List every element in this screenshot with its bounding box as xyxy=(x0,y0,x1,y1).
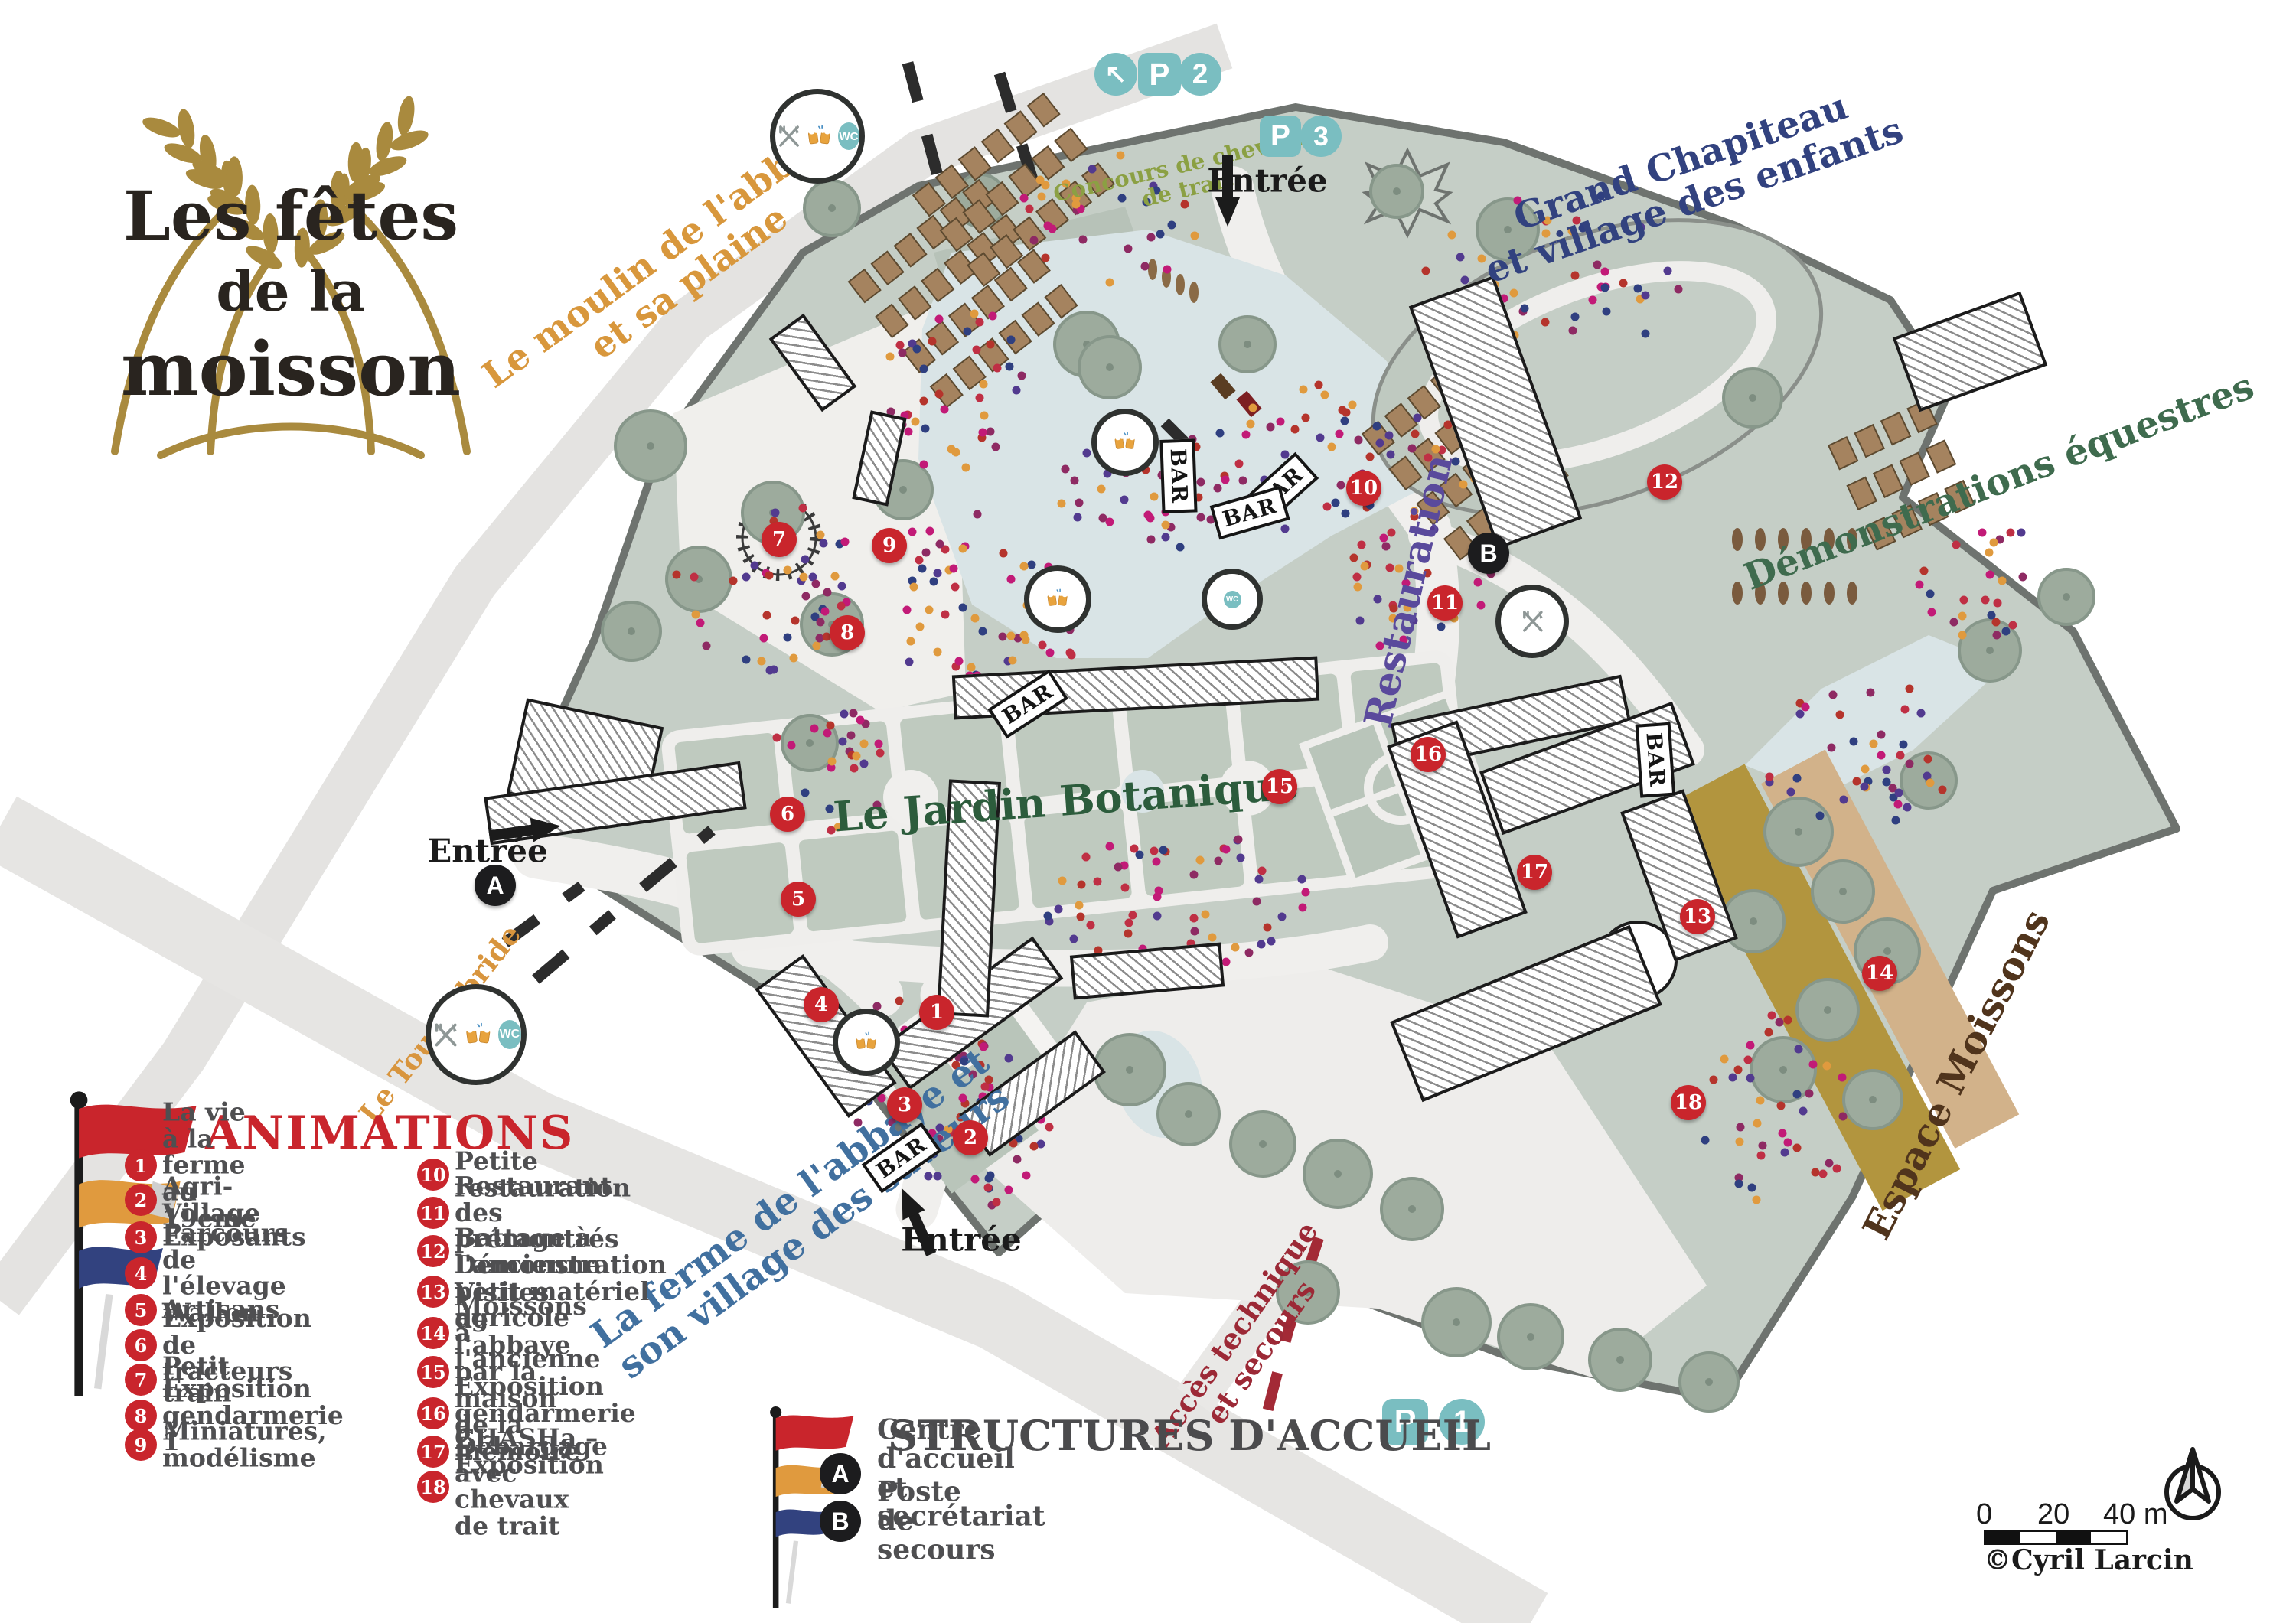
map-marker-16: 16 xyxy=(1411,737,1446,772)
map-marker-4: 4 xyxy=(804,987,839,1022)
legend-num-5: 5 xyxy=(125,1294,157,1326)
horse-figure xyxy=(1732,582,1743,605)
parking-p2-letter: P xyxy=(1138,53,1181,96)
legend-num-10: 10 xyxy=(417,1159,449,1191)
parking-arrow-icon: ↖ xyxy=(1094,53,1137,96)
fork-knife-icon xyxy=(775,119,801,153)
legend-num-11: 11 xyxy=(417,1197,449,1229)
legend-num-17: 17 xyxy=(417,1436,449,1468)
legend-num-15: 15 xyxy=(417,1356,449,1388)
legend-num-13: 13 xyxy=(417,1276,449,1308)
map-marker-5: 5 xyxy=(781,882,816,917)
map-marker-2: 2 xyxy=(953,1120,988,1155)
horse-figure xyxy=(1801,582,1812,605)
legend-num-16: 16 xyxy=(417,1397,449,1429)
legend-letter-A: A xyxy=(820,1453,861,1494)
beer-mugs-icon xyxy=(853,1031,879,1052)
bar-sign: BAR xyxy=(1636,722,1675,798)
compass-icon xyxy=(2151,1445,2235,1529)
legend-num-8: 8 xyxy=(125,1400,157,1432)
logo-line2: de la xyxy=(54,259,528,324)
legend-num-6: 6 xyxy=(125,1329,157,1361)
entrance-arrow-north xyxy=(1214,152,1241,228)
map-point-A: A xyxy=(475,865,516,906)
services-circle xyxy=(1091,409,1159,476)
parking-p2-number: 2 xyxy=(1179,53,1221,96)
fork-knife-icon xyxy=(1519,608,1545,634)
bar-sign: BAR xyxy=(1159,438,1197,513)
scale-20: 20 xyxy=(2037,1498,2069,1531)
map-marker-9: 9 xyxy=(872,528,907,563)
map-marker-14: 14 xyxy=(1862,956,1897,991)
beer-mugs-icon xyxy=(1045,588,1071,609)
legend-num-4: 4 xyxy=(125,1257,157,1289)
legend-num-1: 1 xyxy=(125,1149,157,1181)
map-marker-13: 13 xyxy=(1680,899,1715,934)
legend-structure-label-B: Poste de secours xyxy=(877,1478,996,1564)
legend-label-18: Débardage avec chevaux de trait xyxy=(455,1434,608,1540)
services-circle xyxy=(1495,585,1569,658)
festival-map: Le moulin de l'abbayeet sa plaineConcour… xyxy=(0,0,2296,1623)
map-marker-11: 11 xyxy=(1427,585,1463,621)
services-circle xyxy=(1024,565,1091,633)
services-circle xyxy=(833,1009,900,1076)
beer-mugs-icon xyxy=(463,1019,494,1051)
legend-num-14: 14 xyxy=(417,1317,449,1349)
wc-icon: WC xyxy=(1224,591,1241,608)
map-marker-10: 10 xyxy=(1346,471,1381,506)
horse-figure xyxy=(1824,582,1835,605)
beer-mugs-icon xyxy=(805,122,834,151)
logo-line1: Les fêtes xyxy=(54,176,528,256)
horse-figure xyxy=(1732,528,1743,551)
parking-p3-number: 3 xyxy=(1300,116,1342,157)
services-circle: WC xyxy=(770,89,865,184)
wc-icon: WC xyxy=(838,122,859,150)
legend-num-18: 18 xyxy=(417,1471,449,1503)
legend-num-2: 2 xyxy=(125,1184,157,1216)
services-circle: WC xyxy=(426,984,527,1085)
map-marker-18: 18 xyxy=(1671,1085,1706,1120)
logo-line3: moisson xyxy=(54,326,528,412)
map-marker-3: 3 xyxy=(887,1087,922,1123)
legend-num-12: 12 xyxy=(417,1235,449,1267)
horse-figure xyxy=(1847,582,1857,605)
map-marker-17: 17 xyxy=(1517,855,1552,890)
scale-0: 0 xyxy=(1976,1498,1992,1531)
fork-knife-icon xyxy=(431,1017,459,1053)
services-circle: WC xyxy=(1202,569,1263,630)
legend-num-9: 9 xyxy=(125,1429,157,1461)
horse-figure xyxy=(1755,528,1766,551)
legend-num-7: 7 xyxy=(125,1364,157,1396)
event-logo: Les fêtes de la moisson xyxy=(54,69,528,474)
legend-letter-B: B xyxy=(820,1501,861,1542)
scale-segments xyxy=(1984,1530,2128,1545)
map-marker-6: 6 xyxy=(770,797,805,832)
map-marker-1: 1 xyxy=(919,995,954,1030)
legend-num-3: 3 xyxy=(125,1221,157,1253)
parking-p3-letter: P xyxy=(1260,116,1301,157)
wc-icon: WC xyxy=(498,1020,521,1049)
map-marker-8: 8 xyxy=(830,615,865,650)
beer-mugs-icon xyxy=(1112,432,1138,452)
map-marker-7: 7 xyxy=(762,522,797,557)
map-point-B: B xyxy=(1468,533,1509,574)
credit: ©Cyril Larcin xyxy=(1984,1544,2193,1576)
map-marker-15: 15 xyxy=(1262,769,1297,804)
legend-label-9: Miniatures, modélisme xyxy=(162,1418,327,1471)
map-marker-12: 12 xyxy=(1647,464,1682,500)
